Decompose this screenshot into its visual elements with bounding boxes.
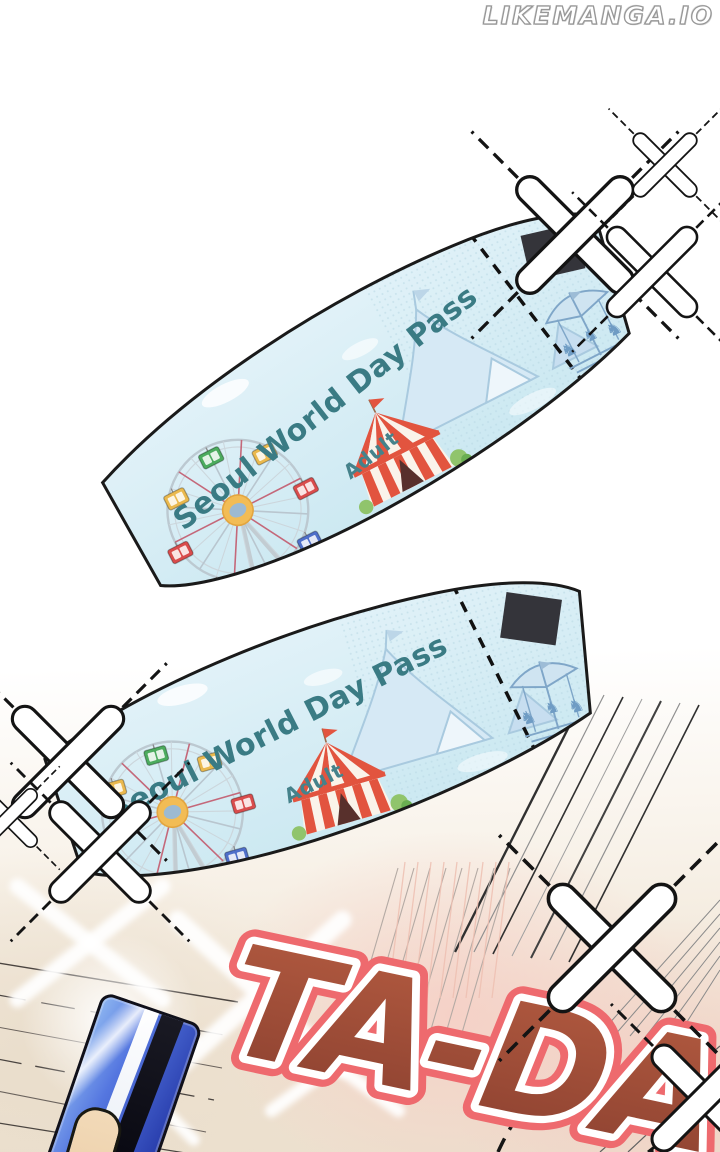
day-pass-ticket-1: Seoul World Day Pass Adult [66,169,685,633]
sparkle-icon [609,109,720,222]
ticket-stub-square [500,592,562,645]
sfx-text: TA-DA [196,916,720,1152]
manga-page: ♞ ♞ ♞ [0,0,720,1152]
day-pass-ticket-2: Seoul World Day Pass Adult [18,542,638,918]
site-watermark: LIKEMANGA.IO [483,1,714,30]
sfx-tada: TA-DA TA-DA TA-DA [180,928,720,1152]
